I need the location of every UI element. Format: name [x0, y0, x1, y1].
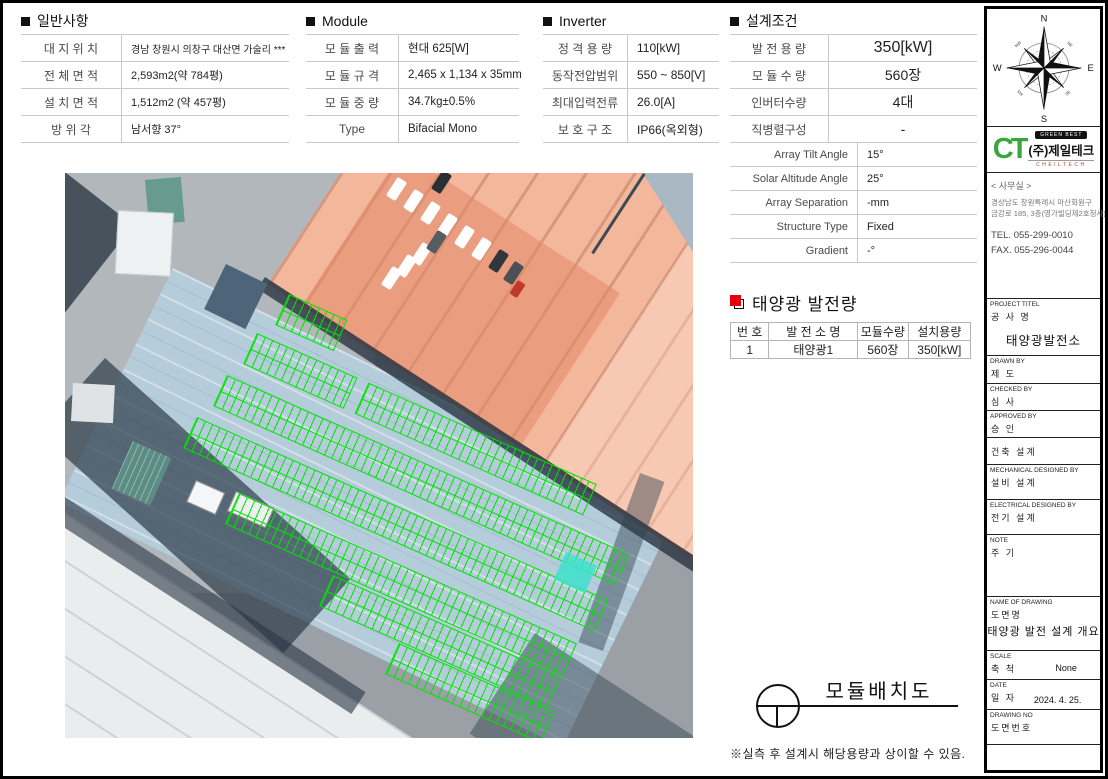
col-header: 발 전 소 명: [769, 323, 858, 341]
disclaimer-note: ※실측 후 설계시 해당용량과 상이할 수 있음.: [730, 745, 990, 762]
row-eng-label: NAME OF DRAWING: [990, 599, 1053, 606]
row-value: 350[kW]: [829, 35, 977, 61]
logo-company-name: (주)제일테크: [1028, 140, 1094, 159]
site-satellite-map: [65, 173, 693, 738]
row-value: 현대 625[W]: [399, 35, 469, 61]
row-value: 4대: [829, 89, 977, 115]
general-info-title: 일반사항: [21, 11, 289, 31]
row-label: 방 위 각: [21, 116, 122, 142]
overlap-squares-icon: [730, 295, 745, 310]
row-value: 15°: [858, 143, 977, 166]
row-value: 경남 창원시 의창구 대산면 가술리 ***: [122, 35, 285, 61]
inverter-table: Inverter 정 격 용 량110[kW] 동작전압범위550 ~ 850[…: [543, 11, 719, 143]
row-value: IP66(옥외형): [628, 116, 703, 142]
project-title-value: 태양광발전소: [987, 330, 1100, 349]
col-header: 모듈수량: [858, 323, 908, 341]
row-label: 인버터수량: [730, 89, 829, 115]
row-eng-label: ELECTRICAL DESIGNED BY: [990, 502, 1076, 509]
row-value: -mm: [858, 191, 977, 214]
row-label: Array Separation: [730, 191, 858, 214]
row-eng-label: PROJECT TITEL: [990, 301, 1040, 308]
row-label: 모 듈 중 량: [306, 89, 399, 115]
table-row: 최대입력전류26.0[A]: [543, 89, 719, 116]
row-label: 모 듈 규 격: [306, 62, 399, 88]
section-bullet-icon: [543, 17, 552, 26]
titleblock-row-mech-design: MECHANICAL DESIGNED BY 설비 설계: [987, 465, 1100, 500]
row-kor-label: 도면명: [991, 608, 1022, 621]
row-label: 전 체 면 적: [21, 62, 122, 88]
table-row: 정 격 용 량110[kW]: [543, 35, 719, 62]
row-label: Array Tilt Angle: [730, 143, 858, 166]
row-label: Solar Altitude Angle: [730, 167, 858, 190]
row-eng-label: APPROVED BY: [990, 413, 1037, 420]
small-building: [115, 210, 174, 277]
row-label: 정 격 용 량: [543, 35, 628, 61]
table-row: Solar Altitude Angle25°: [730, 167, 977, 191]
table-row: 직병렬구성-: [730, 116, 977, 143]
row-kor-label: 설비 설계: [991, 476, 1037, 489]
row-kor-label: 심 사: [991, 395, 1016, 408]
titleblock-row-drawn-by: DRAWN BY 제 도: [987, 356, 1100, 384]
row-label: 모 듈 수 량: [730, 62, 829, 88]
compass-nw-label: NW: [1013, 39, 1021, 47]
col-header: 설치용량: [908, 323, 970, 341]
row-kor-label: 제 도: [991, 367, 1016, 380]
row-eng-label: DRAWN BY: [990, 358, 1025, 365]
row-value: 34.7kg±0.5%: [399, 89, 475, 115]
office-tel: TEL. 055-299-0010: [991, 228, 1096, 243]
row-label: 발 전 용 량: [730, 35, 829, 61]
row-label: Structure Type: [730, 215, 858, 238]
titleblock-row-drawing-name: NAME OF DRAWING 도면명 태양광 발전 설계 개요: [987, 597, 1100, 651]
row-value: 25°: [858, 167, 977, 190]
logo-english-name: CHEILTECH: [1028, 160, 1094, 168]
titleblock-row-checked-by: CHECKED BY 심 사: [987, 384, 1100, 411]
compass-cell: N S E W NE SE SW NW: [987, 9, 1100, 127]
compass-ne-label: NE: [1066, 40, 1074, 48]
row-eng-label: SCALE: [990, 653, 1011, 660]
cell-no: 1: [731, 341, 769, 359]
design-conditions-title: 설계조건: [730, 11, 977, 31]
office-address-line1: 경상남도 창원특례시 마산회원구: [991, 197, 1096, 208]
company-logo: CT GREEN BEST (주)제일테크 CHEILTECH: [987, 127, 1100, 173]
row-kor-label: 축 척: [991, 662, 1016, 675]
compass-s-label: S: [1040, 113, 1046, 123]
row-value: 남서향 37°: [122, 116, 181, 142]
compass-rose-icon: N S E W NE SE SW NW: [992, 12, 1096, 124]
drawing-sheet: 일반사항 대 지 위 치경남 창원시 의창구 대산면 가술리 *** 전 체 면…: [0, 0, 1108, 779]
section-title-text: 일반사항: [37, 11, 89, 31]
row-eng-label: DRAWING NO: [990, 712, 1033, 719]
row-value: 26.0[A]: [628, 89, 675, 115]
compass-sw-label: SW: [1016, 88, 1024, 96]
section-title-text: Module: [322, 13, 368, 29]
row-value: 2,593m2(약 784평): [122, 62, 223, 88]
section-bullet-icon: [21, 17, 30, 26]
table-row: 방 위 각남서향 37°: [21, 116, 289, 143]
module-table: Module 모 듈 출 력현대 625[W] 모 듈 규 격2,465 x 1…: [306, 11, 519, 143]
row-label: 직병렬구성: [730, 116, 829, 142]
row-label: 보 호 구 조: [543, 116, 628, 142]
office-info-cell: < 사무실 > 경상남도 창원특례시 마산회원구 금강로 185, 3층(영가빌…: [987, 173, 1100, 299]
date-value: 2024. 4. 25.: [1015, 695, 1100, 705]
titleblock-row-approved-by: APPROVED BY 승 인: [987, 411, 1100, 438]
row-value: 560장: [829, 62, 977, 88]
row-label: 설 치 면 적: [21, 89, 122, 115]
compass-se-label: SE: [1064, 88, 1072, 96]
symbol-divider: [776, 706, 778, 727]
row-kor-label: 주 기: [991, 546, 1016, 559]
small-building: [71, 383, 115, 423]
titleblock-row-arch-design: 건축 설계: [987, 438, 1100, 465]
scale-value: None: [1032, 663, 1100, 673]
table-row: 전 체 면 적2,593m2(약 784평): [21, 62, 289, 89]
titleblock-row-elec-design: ELECTRICAL DESIGNED BY 전기 설계: [987, 500, 1100, 535]
row-label: 대 지 위 치: [21, 35, 122, 61]
titleblock-row-drawing-no: DRAWING NO 도면번호: [987, 710, 1100, 745]
col-header: 번 호: [731, 323, 769, 341]
table-row: Array Tilt Angle15°: [730, 143, 977, 167]
row-value: -°: [858, 239, 977, 262]
row-eng-label: MECHANICAL DESIGNED BY: [990, 467, 1079, 474]
row-value: Bifacial Mono: [399, 116, 477, 142]
row-kor-label: 일 자: [991, 691, 1016, 704]
cell-cap: 350[kW]: [908, 341, 970, 359]
table-row: Gradient-°: [730, 239, 977, 263]
pv-generation-title: 태양광 발전량: [730, 290, 971, 315]
row-kor-label: 공 사 명: [991, 310, 1031, 323]
compass-n-label: N: [1040, 13, 1047, 23]
table-row: Array Separation-mm: [730, 191, 977, 215]
logo-ct-mark: CT: [993, 135, 1026, 164]
titleblock-row-scale: SCALE 축 척 None: [987, 651, 1100, 680]
inverter-title: Inverter: [543, 11, 719, 31]
row-value: 2,465 x 1,134 x 35mm: [399, 62, 522, 88]
titleblock-row-date: DATE 일 자 2024. 4. 25.: [987, 680, 1100, 710]
general-info-table: 일반사항 대 지 위 치경남 창원시 의창구 대산면 가술리 *** 전 체 면…: [21, 11, 289, 143]
table-row: TypeBifacial Mono: [306, 116, 519, 143]
design-conditions-table: 설계조건 발 전 용 량350[kW] 모 듈 수 량560장 인버터수량4대 …: [730, 11, 977, 263]
compass-w-label: W: [992, 63, 1001, 73]
table-row: 설 치 면 적1,512m2 (약 457평): [21, 89, 289, 116]
table-row: 대 지 위 치경남 창원시 의창구 대산면 가술리 ***: [21, 35, 289, 62]
row-value: 550 ~ 850[V]: [628, 62, 705, 88]
office-heading: < 사무실 >: [991, 179, 1096, 192]
table-row: 모 듈 중 량34.7kg±0.5%: [306, 89, 519, 116]
compass-e-label: E: [1087, 63, 1093, 73]
table-row: 발 전 용 량350[kW]: [730, 35, 977, 62]
cell-name: 태양광1: [769, 341, 858, 359]
titleblock-row-project: PROJECT TITEL 공 사 명 태양광발전소: [987, 299, 1100, 356]
table-row: Structure TypeFixed: [730, 215, 977, 239]
row-eng-label: CHECKED BY: [990, 386, 1032, 393]
row-label: 최대입력전류: [543, 89, 628, 115]
module-title: Module: [306, 11, 519, 31]
table-row: 동작전압범위550 ~ 850[V]: [543, 62, 719, 89]
section-bullet-icon: [306, 17, 315, 26]
title-block-panel: N S E W NE SE SW NW CT GREEN BEST (주)제일테…: [984, 6, 1103, 773]
table-row: 인버터수량4대: [730, 89, 977, 116]
row-kor-label: 건축 설계: [991, 445, 1037, 458]
title-underline: [756, 705, 958, 707]
row-value: Fixed: [858, 215, 977, 238]
row-label: Type: [306, 116, 399, 142]
table-row: 보 호 구 조IP66(옥외형): [543, 116, 719, 143]
table-row: 모 듈 규 격2,465 x 1,134 x 35mm: [306, 62, 519, 89]
drawing-title: 모듈배치도: [803, 675, 955, 704]
titleblock-row-note: NOTE 주 기: [987, 535, 1100, 597]
row-kor-label: 도면번호: [991, 721, 1032, 734]
cell-qty: 560장: [858, 341, 908, 359]
row-kor-label: 전기 설계: [991, 511, 1037, 524]
pv-title-text: 태양광 발전량: [752, 290, 858, 315]
row-value: -: [829, 116, 977, 142]
pv-generation-section: 태양광 발전량 번 호 발 전 소 명 모듈수량 설치용량 1 태양광1 560…: [730, 290, 971, 359]
office-fax: FAX. 055-296-0044: [991, 243, 1096, 258]
pv-data-row: 1 태양광1 560장 350[kW]: [731, 341, 971, 359]
section-title-text: Inverter: [559, 13, 606, 29]
row-label: 모 듈 출 력: [306, 35, 399, 61]
row-eng-label: DATE: [990, 682, 1007, 689]
table-row: 모 듈 수 량560장: [730, 62, 977, 89]
row-kor-label: 승 인: [991, 422, 1016, 435]
row-value: 1,512m2 (약 457평): [122, 89, 226, 115]
row-label: Gradient: [730, 239, 858, 262]
logo-badge: GREEN BEST: [1035, 131, 1087, 139]
titleblock-spare-cell: [987, 745, 1100, 770]
table-row: 모 듈 출 력현대 625[W]: [306, 35, 519, 62]
section-bullet-icon: [730, 17, 739, 26]
row-value: 110[kW]: [628, 35, 680, 61]
office-address-line2: 금강로 185, 3층(영가빌딩제2호청사): [991, 208, 1096, 219]
pv-header-row: 번 호 발 전 소 명 모듈수량 설치용량: [731, 323, 971, 341]
row-label: 동작전압범위: [543, 62, 628, 88]
section-title-text: 설계조건: [746, 11, 798, 31]
pv-generation-table: 번 호 발 전 소 명 모듈수량 설치용량 1 태양광1 560장 350[kW…: [730, 322, 971, 359]
row-eng-label: NOTE: [990, 537, 1008, 544]
drawing-name-value: 태양광 발전 설계 개요: [987, 623, 1100, 639]
